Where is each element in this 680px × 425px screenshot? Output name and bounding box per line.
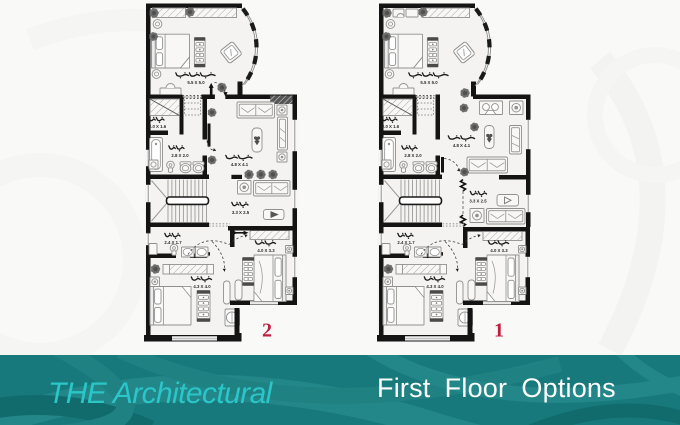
svg-text:THE Architectural: THE Architectural: [48, 377, 274, 410]
svg-text:2.8 X 2.0: 2.8 X 2.0: [404, 153, 422, 158]
svg-text:2.8 X 2.0: 2.8 X 2.0: [171, 153, 189, 158]
svg-text:4.8 X 4.1: 4.8 X 4.1: [231, 162, 249, 167]
svg-text:1: 1: [494, 320, 504, 342]
svg-text:2.0 X 1.6: 2.0 X 1.6: [382, 124, 400, 129]
svg-text:3.3 X 2.5: 3.3 X 2.5: [469, 199, 487, 204]
svg-text:2.0 X 1.6: 2.0 X 1.6: [149, 124, 167, 129]
svg-text:4.8 X 4.1: 4.8 X 4.1: [453, 143, 471, 148]
svg-text:5.5 X 5.0: 5.5 X 5.0: [420, 80, 438, 85]
svg-text:4.0 X 3.3: 4.0 X 3.3: [490, 248, 508, 253]
svg-text:First Floor Options: First Floor Options: [377, 373, 616, 403]
svg-text:4.3 X 4.0: 4.3 X 4.0: [193, 284, 211, 289]
svg-text:3.3 X 2.5: 3.3 X 2.5: [232, 210, 250, 215]
svg-text:4.3 X 4.0: 4.3 X 4.0: [426, 284, 444, 289]
svg-text:4.0 X 3.3: 4.0 X 3.3: [257, 248, 275, 253]
svg-text:5.5 X 5.0: 5.5 X 5.0: [187, 80, 205, 85]
svg-text:2: 2: [262, 320, 272, 342]
